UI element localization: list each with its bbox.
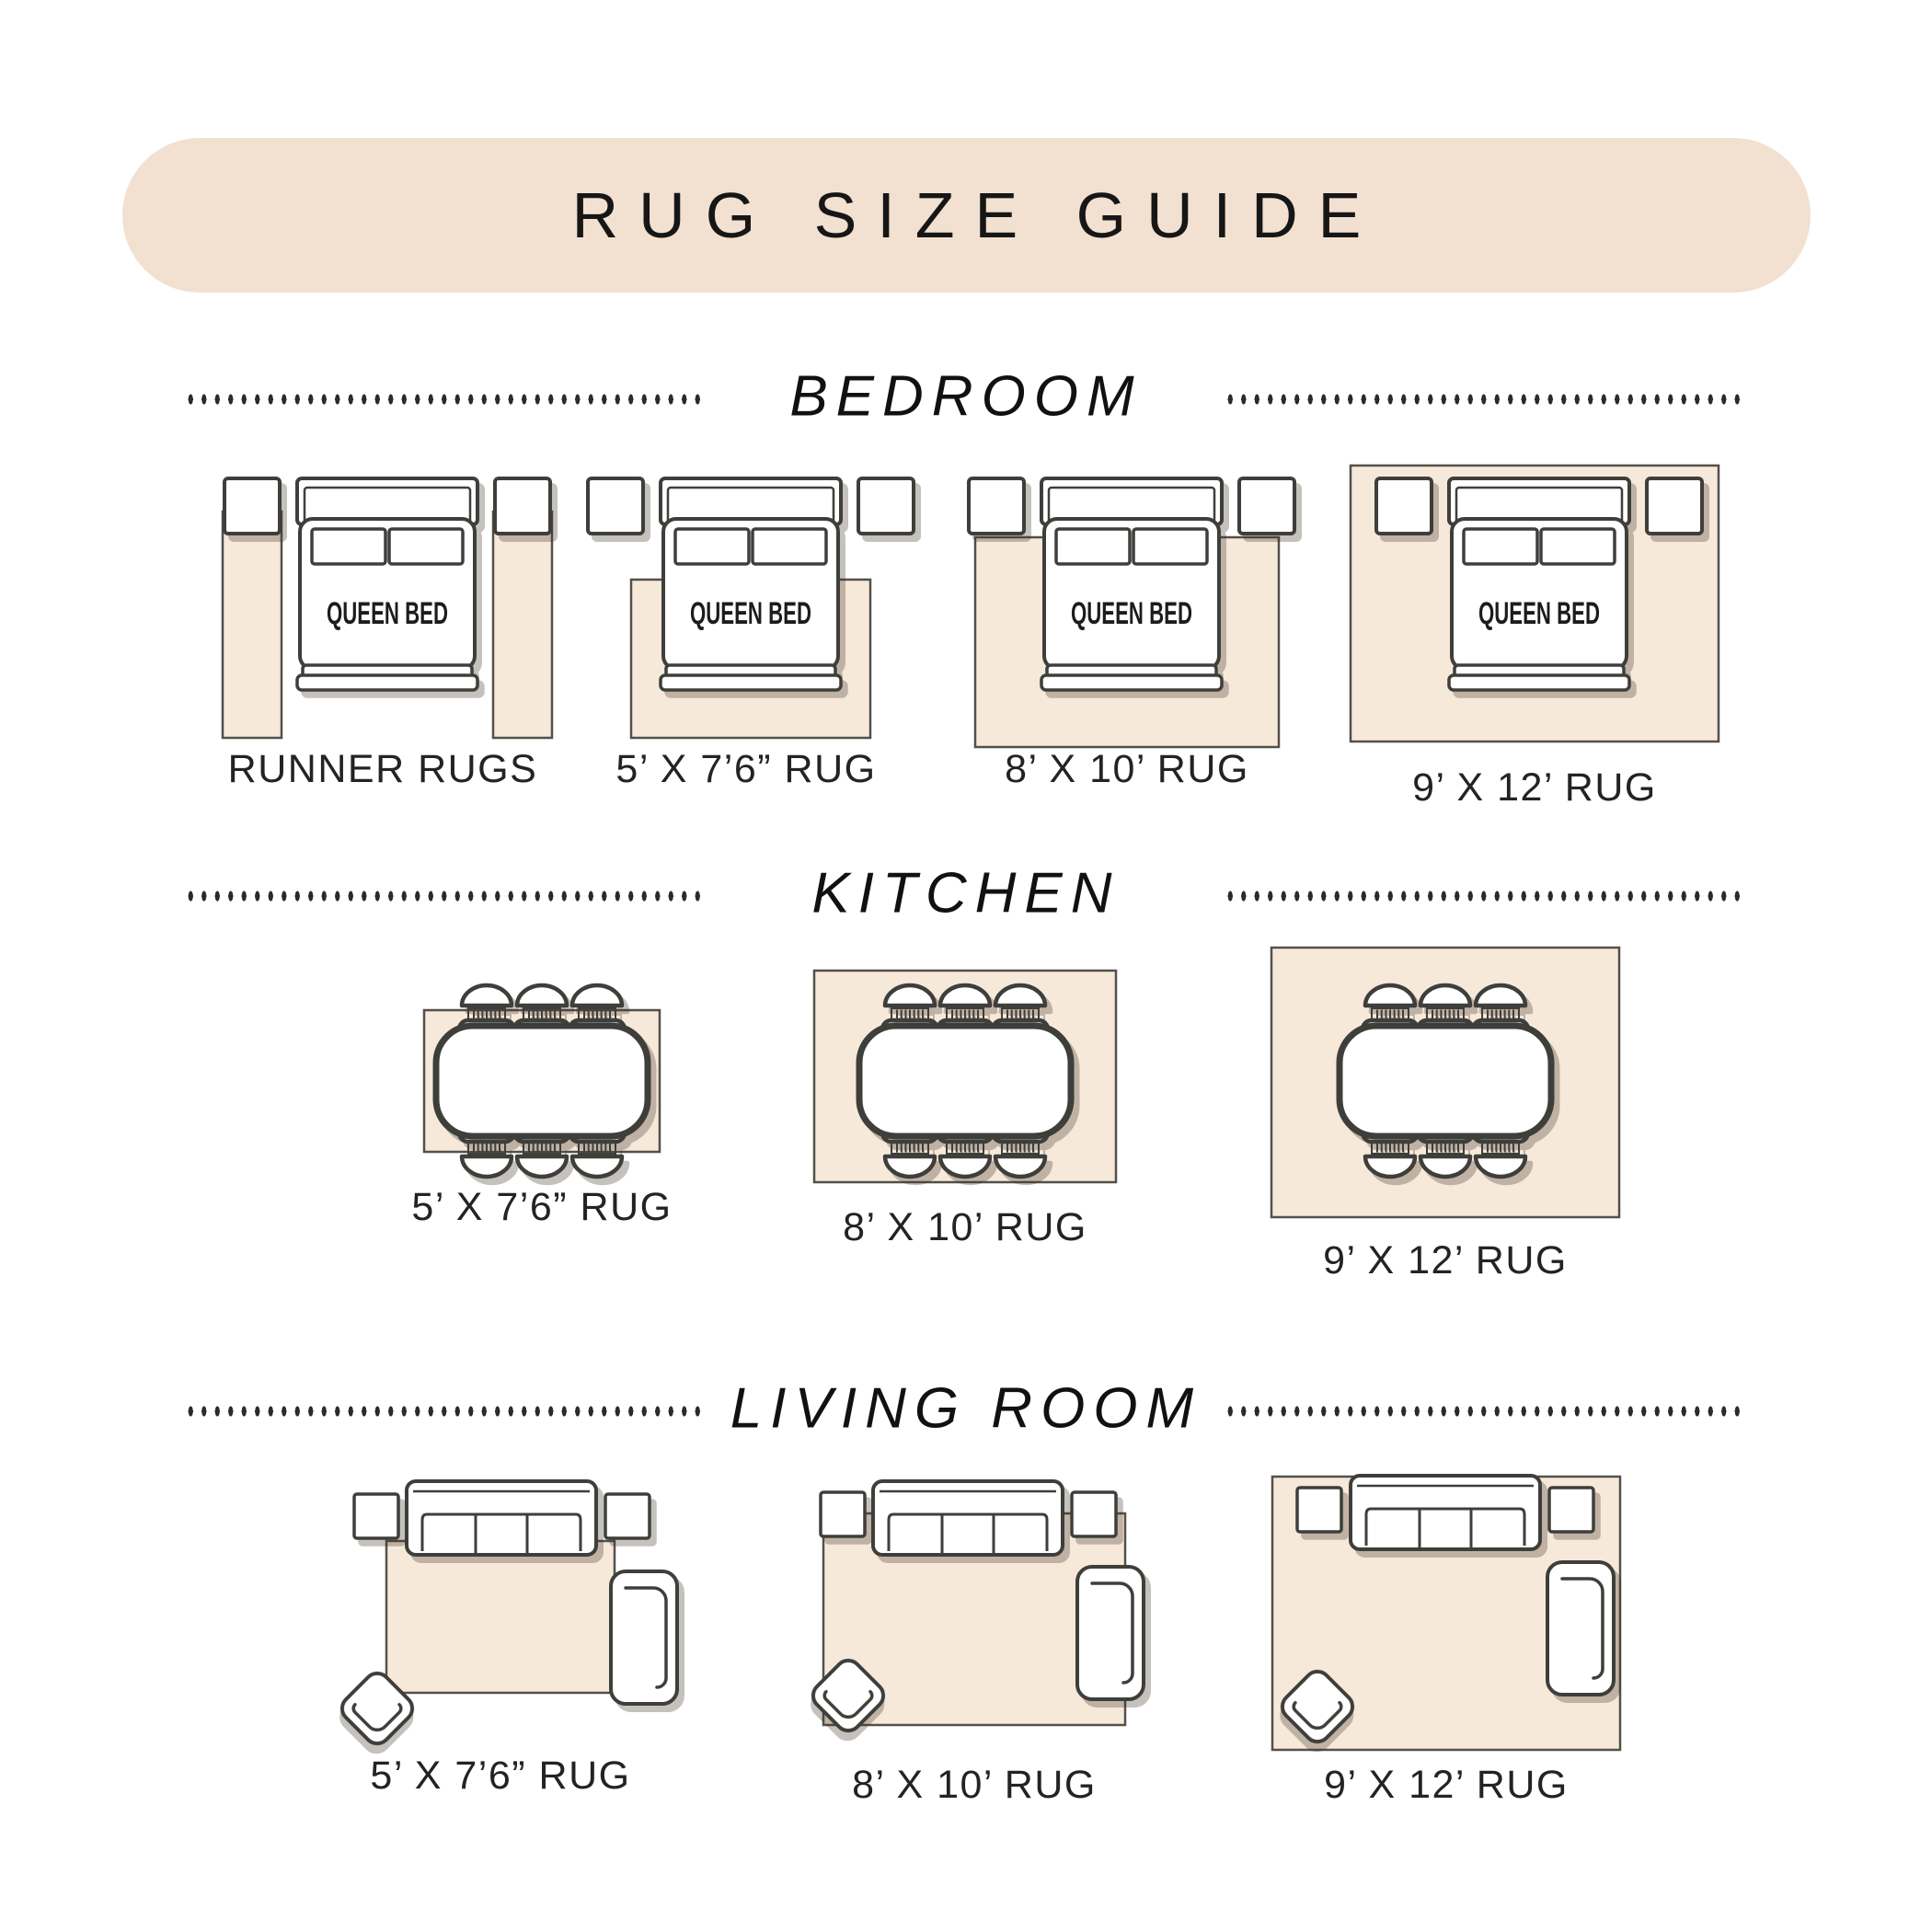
header-pill: RUG SIZE GUIDE bbox=[122, 138, 1811, 293]
rug-size-label: 8’ X 10’ RUG bbox=[934, 747, 1320, 792]
kitchen-8x10-diagram: 8’ X 10’ RUG bbox=[763, 948, 1167, 1288]
runner-rug-right bbox=[493, 512, 552, 738]
rug-size-label: 8’ X 10’ RUG bbox=[763, 1205, 1167, 1250]
dotted-divider-right bbox=[1224, 1406, 1744, 1417]
dotted-divider-right bbox=[1224, 891, 1744, 902]
runner-rug-left bbox=[223, 512, 282, 738]
bedroom-5x76-diagram: 5’ X 7’6” RUG bbox=[553, 460, 939, 810]
section-header-kitchen: KITCHEN bbox=[0, 861, 1932, 931]
bedroom-9x12-diagram: 9’ X 12’ RUG bbox=[1341, 460, 1728, 810]
section-header-bedroom: BEDROOM bbox=[0, 364, 1932, 434]
kitchen-5x76-diagram: 5’ X 7’6” RUG bbox=[339, 948, 744, 1288]
rug-size-label: 9’ X 12’ RUG bbox=[1225, 1763, 1667, 1808]
rug-size-label: 5’ X 7’6” RUG bbox=[553, 747, 939, 792]
page-title: RUG SIZE GUIDE bbox=[552, 178, 1382, 252]
rug bbox=[386, 1541, 615, 1693]
rug-size-label: 9’ X 12’ RUG bbox=[1341, 765, 1728, 811]
kitchen-9x12-diagram: 9’ X 12’ RUG bbox=[1243, 948, 1648, 1288]
section-header-living-room: LIVING ROOM bbox=[0, 1376, 1932, 1446]
living-room-9x12-diagram: 9’ X 12’ RUG bbox=[1251, 1463, 1693, 1831]
rug-size-label: 9’ X 12’ RUG bbox=[1243, 1238, 1648, 1283]
rug-size-label: 5’ X 7’6” RUG bbox=[339, 1185, 744, 1230]
living-room-5x76-diagram: 5’ X 7’6” RUG bbox=[258, 1463, 699, 1831]
rug-size-label: 5’ X 7’6” RUG bbox=[280, 1754, 721, 1799]
bedroom-runner-rugs-diagram: RUNNER RUGS bbox=[190, 460, 576, 810]
dotted-divider-right bbox=[1224, 394, 1744, 405]
bedroom-8x10-diagram: 8’ X 10’ RUG bbox=[934, 460, 1320, 810]
rug-size-label: 8’ X 10’ RUG bbox=[753, 1763, 1195, 1808]
rug-size-label: RUNNER RUGS bbox=[190, 747, 576, 792]
rug-size-guide-page: QUEEN BED bbox=[0, 0, 1932, 1932]
living-room-8x10-diagram: 8’ X 10’ RUG bbox=[773, 1463, 1214, 1831]
